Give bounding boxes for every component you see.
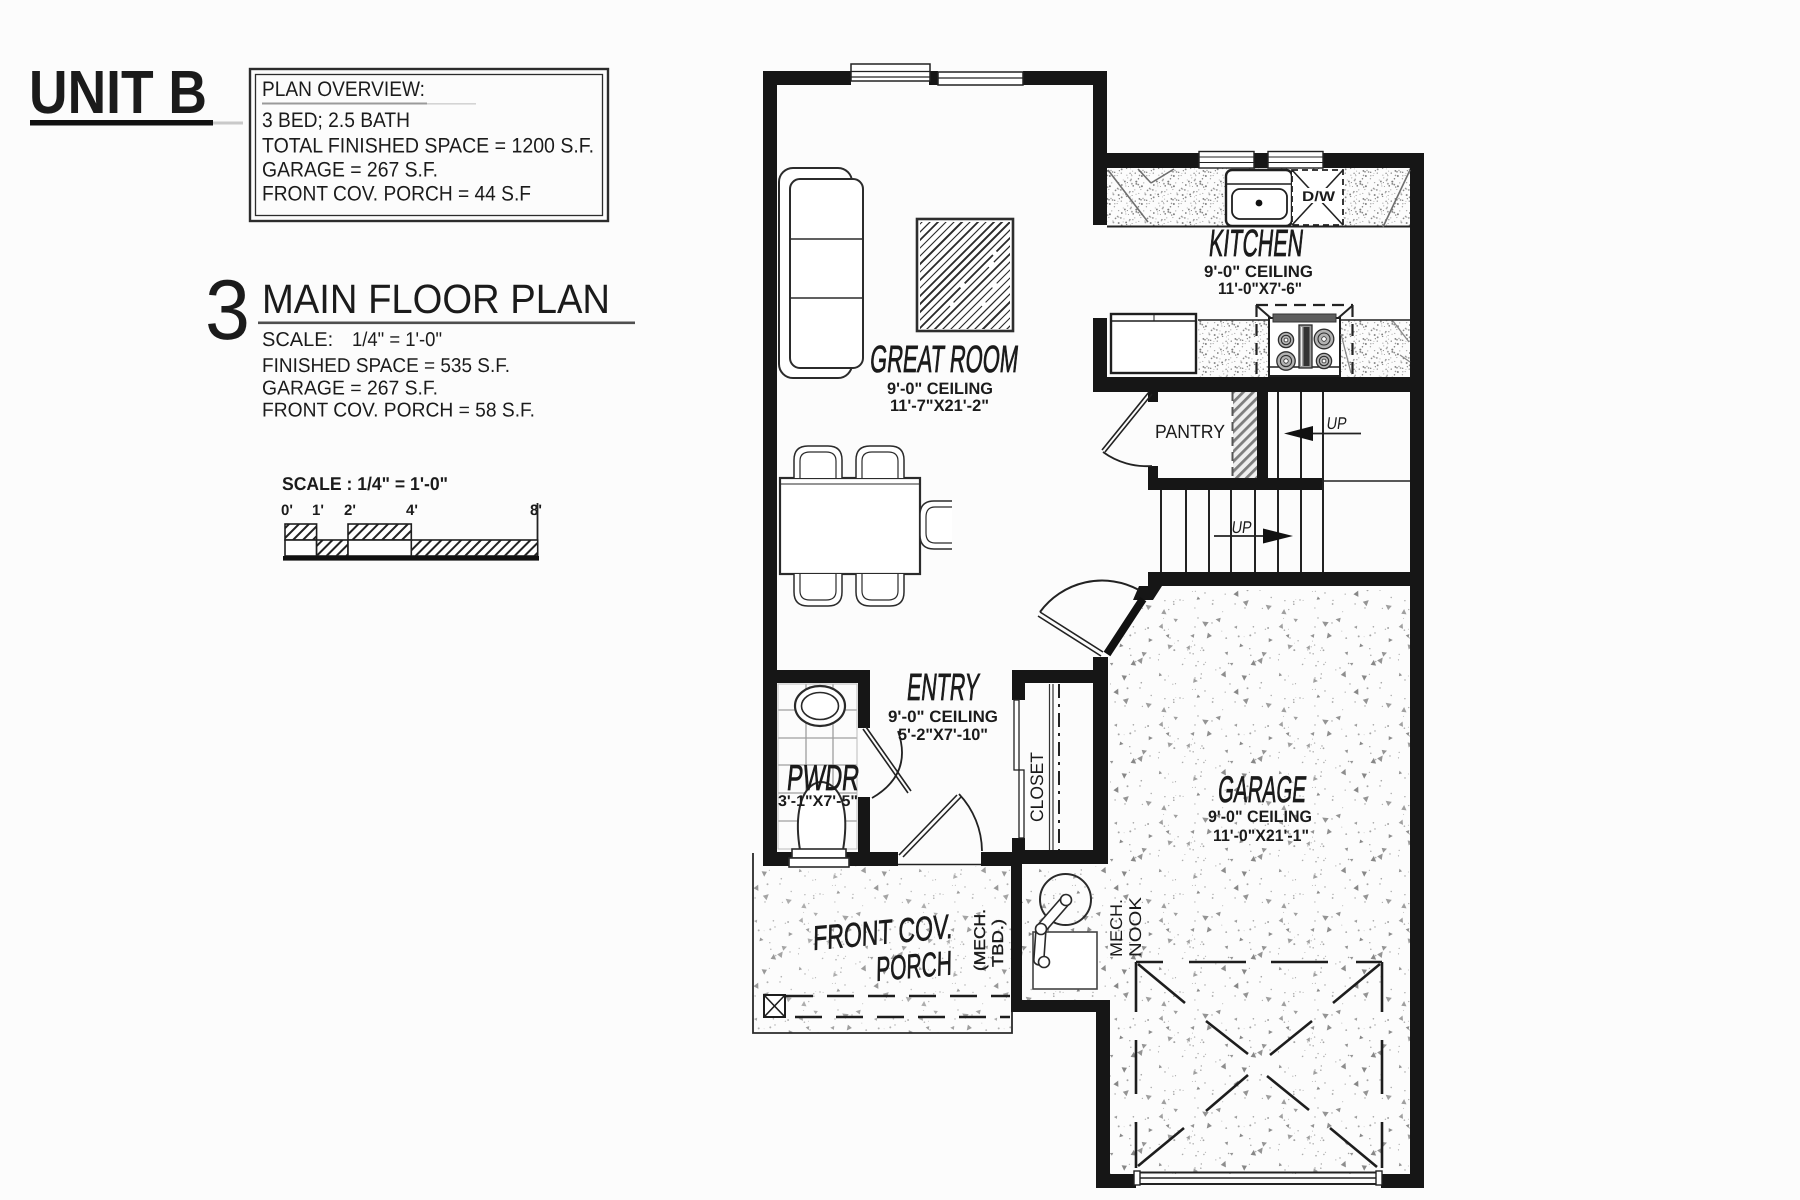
svg-text:MAIN FLOOR PLAN: MAIN FLOOR PLAN (262, 276, 610, 322)
svg-text:9'-0" CEILING: 9'-0" CEILING (887, 380, 993, 398)
svg-text:UP: UP (1325, 414, 1348, 433)
svg-text:TBD.): TBD.) (990, 919, 1007, 967)
svg-text:9'-0" CEILING: 9'-0" CEILING (1208, 808, 1312, 826)
svg-text:GARAGE = 267 S.F.: GARAGE = 267 S.F. (262, 159, 438, 182)
svg-text:11'-7"X21'-2": 11'-7"X21'-2" (890, 397, 989, 415)
svg-text:1/4" = 1'-0": 1/4" = 1'-0" (352, 329, 442, 351)
svg-text:MECH.: MECH. (1107, 899, 1126, 957)
svg-text:FINISHED SPACE = 535 S.F.: FINISHED SPACE = 535 S.F. (262, 355, 510, 377)
svg-text:8': 8' (530, 502, 542, 519)
svg-text:3 BED; 2.5 BATH: 3 BED; 2.5 BATH (262, 109, 410, 132)
svg-text:NOOK: NOOK (1126, 896, 1145, 957)
svg-text:(MECH.: (MECH. (972, 909, 989, 971)
svg-text:3: 3 (205, 263, 250, 358)
svg-text:PWDR: PWDR (785, 757, 861, 798)
svg-text:PANTRY: PANTRY (1155, 422, 1225, 443)
svg-text:UNIT B: UNIT B (29, 58, 207, 126)
svg-text:GREAT ROOM: GREAT ROOM (868, 339, 1020, 381)
svg-text:PORCH: PORCH (876, 944, 952, 989)
svg-text:5'-2"X7'-10": 5'-2"X7'-10" (898, 726, 988, 744)
svg-text:3'-1"X7'-5": 3'-1"X7'-5" (778, 793, 858, 810)
svg-text:SCALE:: SCALE: (262, 329, 333, 351)
svg-text:11'-0"X21'-1": 11'-0"X21'-1" (1213, 827, 1309, 845)
svg-text:1': 1' (312, 502, 324, 519)
svg-text:UP: UP (1230, 518, 1253, 537)
svg-text:FRONT COV. PORCH = 58 S.F.: FRONT COV. PORCH = 58 S.F. (262, 400, 535, 422)
svg-text:FRONT COV. PORCH = 44 S.F: FRONT COV. PORCH = 44 S.F (262, 183, 531, 206)
svg-text:TOTAL FINISHED SPACE = 1200 S.: TOTAL FINISHED SPACE = 1200 S.F. (262, 135, 594, 158)
svg-text:ENTRY: ENTRY (905, 667, 981, 709)
svg-text:GARAGE: GARAGE (1216, 769, 1308, 810)
svg-text:9'-0" CEILING: 9'-0" CEILING (888, 708, 998, 726)
svg-text:4': 4' (406, 502, 418, 519)
svg-text:0': 0' (281, 502, 293, 519)
svg-text:SCALE : 1/4" = 1'-0": SCALE : 1/4" = 1'-0" (282, 473, 448, 494)
svg-text:9'-0" CEILING: 9'-0" CEILING (1204, 263, 1313, 281)
svg-text:CLOSET: CLOSET (1027, 752, 1047, 822)
svg-text:KITCHEN: KITCHEN (1207, 223, 1305, 265)
svg-text:GARAGE = 267 S.F.: GARAGE = 267 S.F. (262, 378, 438, 400)
svg-text:11'-0"X7'-6": 11'-0"X7'-6" (1218, 280, 1302, 298)
svg-text:PLAN OVERVIEW:: PLAN OVERVIEW: (262, 78, 425, 101)
svg-text:D/W: D/W (1302, 188, 1336, 204)
svg-text:2': 2' (344, 502, 356, 519)
